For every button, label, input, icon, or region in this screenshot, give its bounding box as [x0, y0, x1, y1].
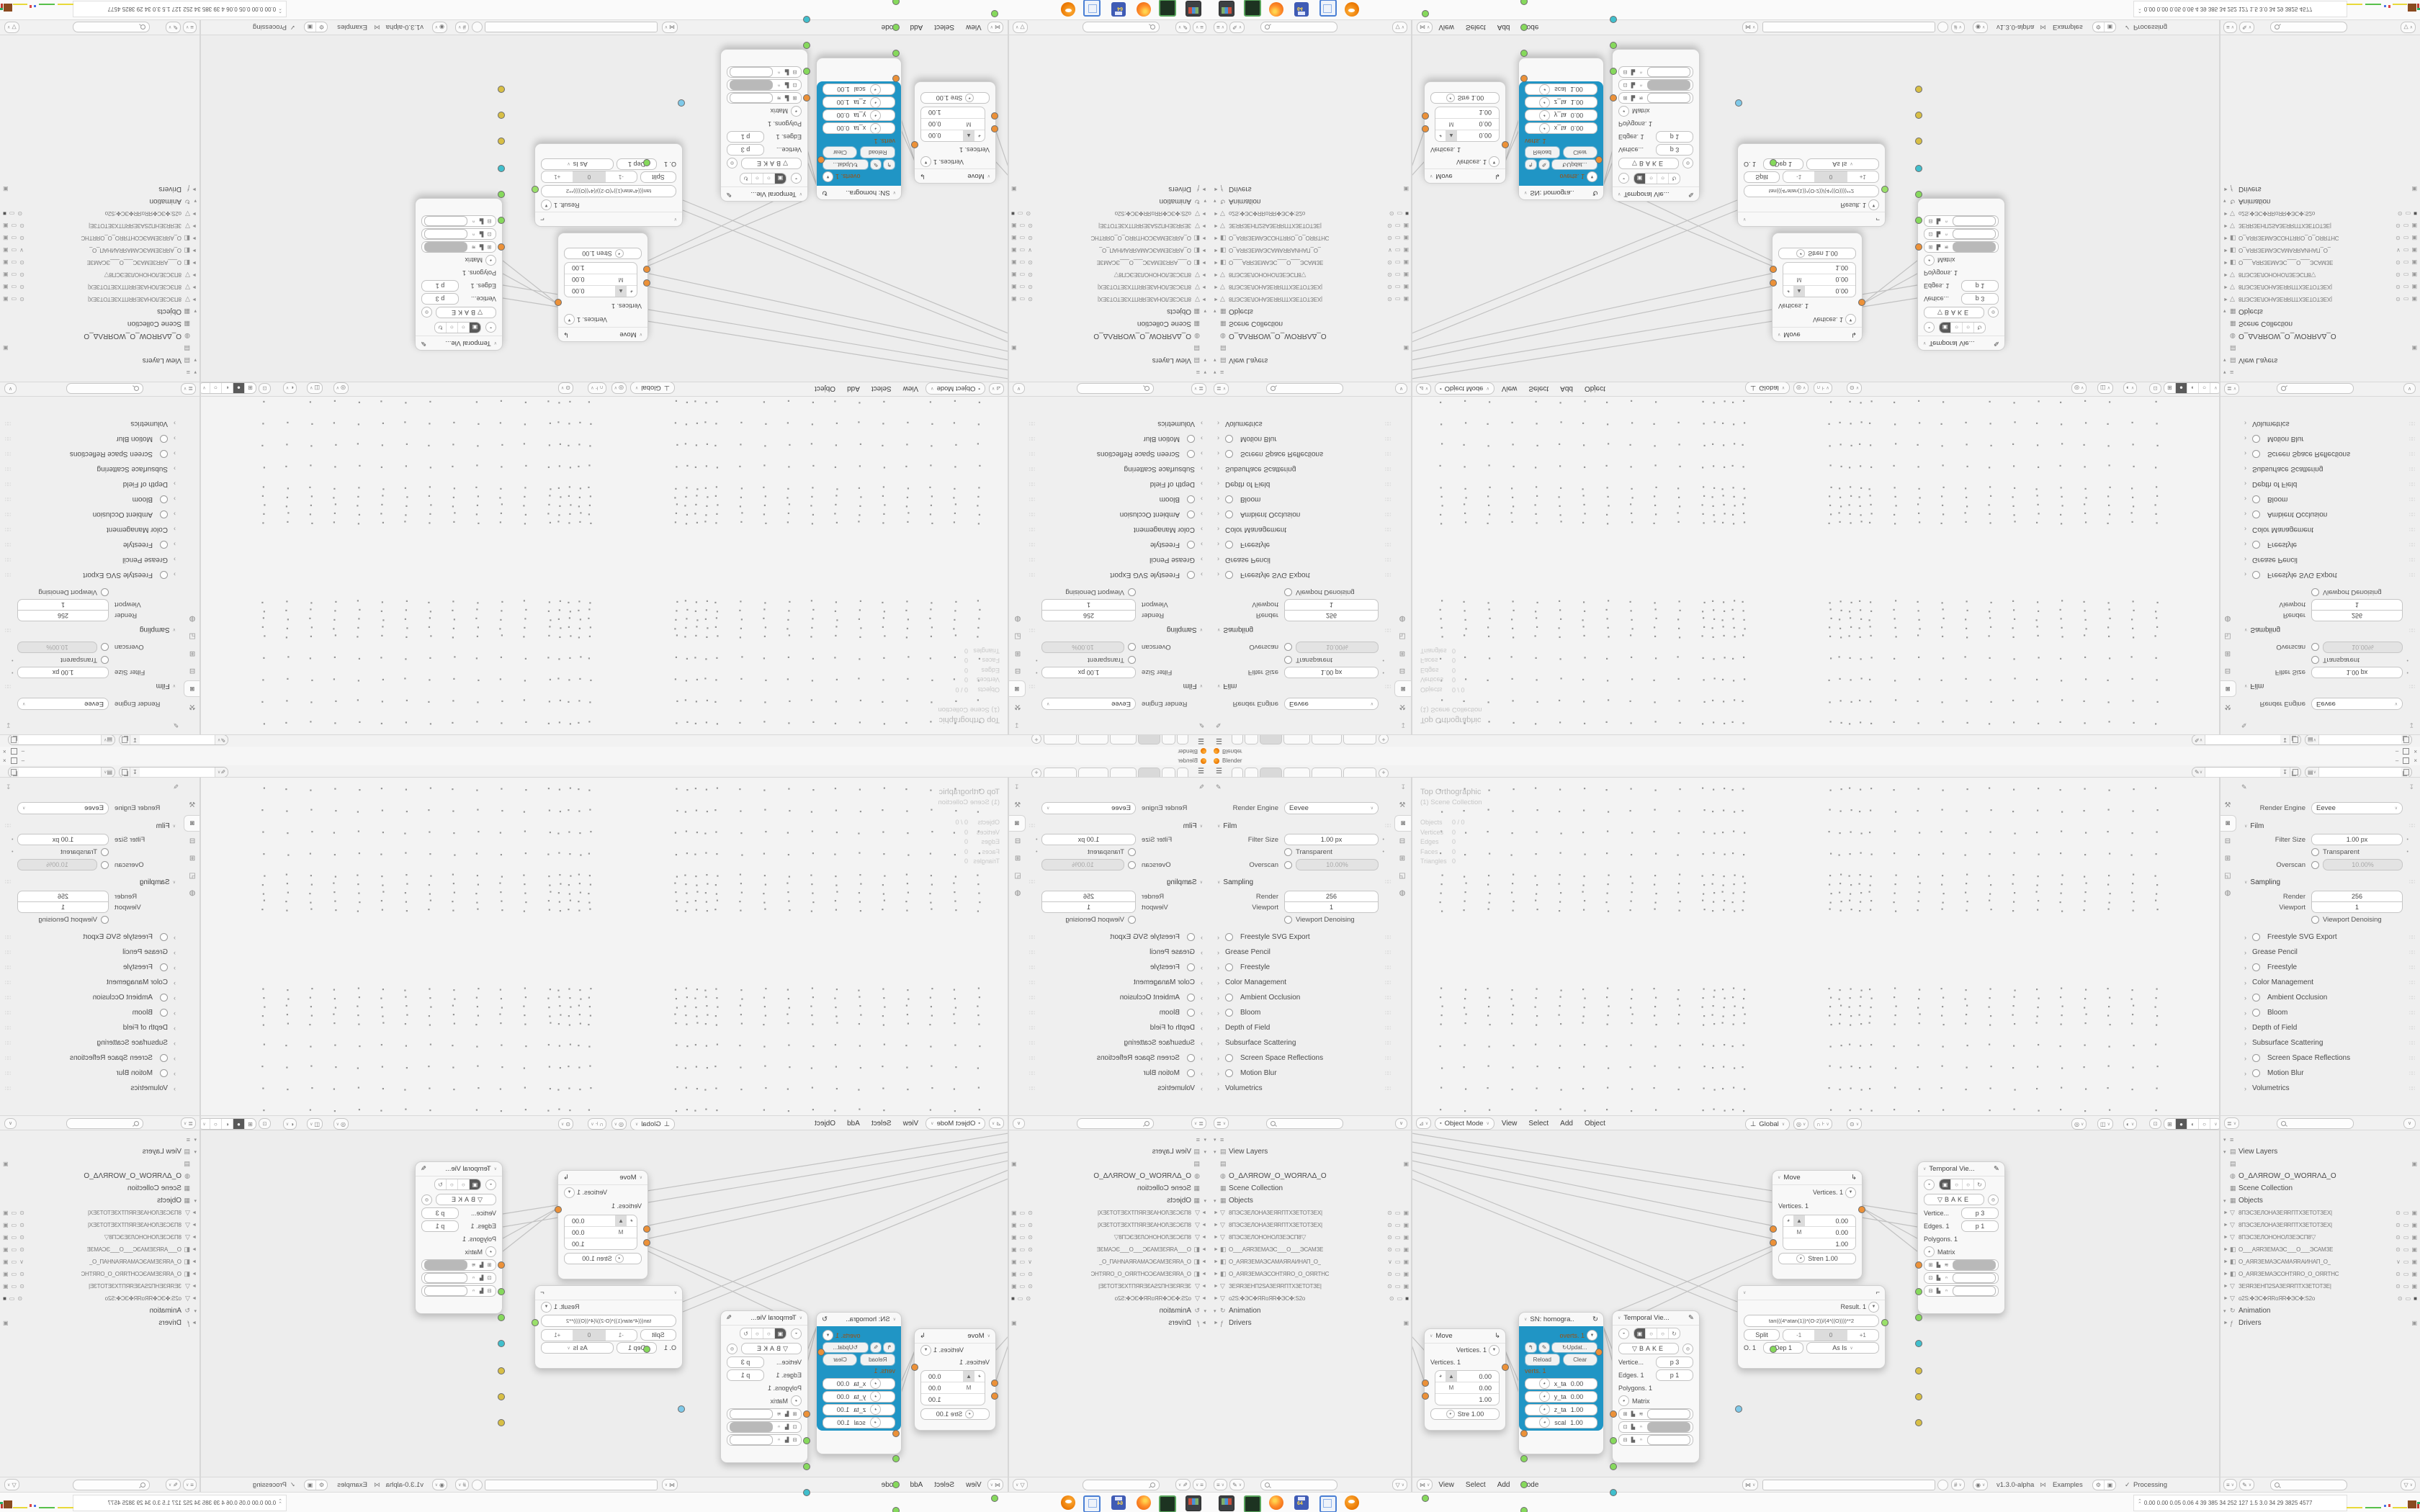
collapsed-section-volumetrics[interactable]: ›Volumetrics∷∷ [1026, 416, 1210, 431]
eye-icon[interactable]: ⊙ [1387, 296, 1392, 302]
outliner-row-object[interactable]: ►◧O_АЯRЗЕМАЭСАМАЯRАИНАП_O_∨▭▣ [0, 1256, 200, 1268]
collapsed-section-bloom[interactable]: ›Bloom∷∷ [1, 1005, 183, 1020]
eye-icon[interactable]: ⊙ [2396, 271, 2401, 278]
collapsed-section-freestyle[interactable]: ›Freestyle∷∷ [1026, 537, 1210, 552]
menu-icon[interactable]: ☰ [1216, 768, 1224, 775]
workspace-tab[interactable] [1177, 768, 1188, 778]
checkbox-row[interactable]: Viewport Denoising [2237, 916, 2419, 924]
filter-tool-button[interactable]: ✎∨ [1175, 22, 1191, 33]
output-socket[interactable] [1502, 141, 1509, 148]
workspace-tab[interactable] [1177, 734, 1188, 744]
filter-button[interactable]: ▽∨ [2401, 22, 2416, 33]
tab-view-layer-icon[interactable]: ⊞ [1010, 646, 1026, 661]
render-engine-row[interactable]: Render EngineEevee∨ [1026, 802, 1210, 814]
search-input[interactable] [2277, 1118, 2354, 1129]
input-socket[interactable] [1770, 266, 1777, 273]
scr-icon[interactable]: ▭ [1395, 1222, 1401, 1228]
section-header[interactable]: ∨Sampling∷∷ [1, 877, 183, 887]
menu-view[interactable]: View [1438, 24, 1454, 32]
formula-input[interactable]: tan(((4*atan(1))*(O-2))/(4*((O))))**2 [1744, 1315, 1879, 1327]
outliner-row-world[interactable]: ◍O_ΔΛЯROW_O_WOЯRΛΔ_O [0, 1170, 200, 1182]
tab-tool-icon[interactable]: ⚒ [1394, 699, 1410, 714]
tab-world-icon[interactable]: ◍ [2220, 886, 2236, 901]
output-socket[interactable] [912, 1364, 919, 1371]
outliner-row-animation[interactable]: ▾↻Animation [2220, 1305, 2420, 1317]
collapsed-section-screen-space-reflections[interactable]: ›Screen Space Reflections∷∷ [1026, 446, 1210, 462]
frame-app-icon[interactable] [1083, 1495, 1101, 1512]
matrix-widget[interactable]: ◕▲0.00 M0.00 1.00 [1783, 262, 1856, 297]
input-socket[interactable] [1422, 1495, 1429, 1502]
status-icon[interactable] [1937, 1480, 1948, 1490]
samples-render-row[interactable]: Render256 [2237, 891, 2419, 902]
copy-icon[interactable] [2401, 768, 2411, 777]
dropdown-icon[interactable]: ▼ [1845, 315, 1856, 325]
sn-field-y_ta[interactable]: ◕y_ta0.00 [821, 110, 897, 121]
image-viewer-app-icon[interactable] [1244, 0, 1261, 17]
eye-icon[interactable]: ⊙ [1387, 284, 1392, 290]
cam-icon[interactable]: ▣ [3, 235, 9, 241]
outliner-row-objects[interactable]: ▾▦Objects [1008, 1194, 1210, 1207]
sn-field-z_ta[interactable]: ◕z_ta1.00 [1523, 97, 1599, 108]
outliner-row-view-layers[interactable]: ▾▤View Layers [2220, 1146, 2420, 1158]
offset-stepper[interactable]: -10+1 [1783, 171, 1879, 184]
menu-select[interactable]: Select [871, 385, 892, 393]
collapsed-section-freestyle-svg-export[interactable]: ›Freestyle SVG Export∷∷ [1, 930, 183, 945]
tab-tool-icon[interactable]: ⚒ [2220, 798, 2236, 813]
box-icon[interactable]: ▣ [2411, 1320, 2417, 1326]
eye-icon[interactable]: ⊙ [1028, 1246, 1033, 1253]
scr-icon[interactable]: ▭ [12, 247, 17, 253]
overscan-row[interactable]: Overscan10.00% [1210, 859, 1394, 870]
image-icon[interactable]: ▤∨ [2305, 735, 2319, 744]
outliner-row-object[interactable]: ►▽8ПЭСЗЕЛОНОНОЛЗЕЭСП8▽⊙▭▣ [1210, 269, 1412, 281]
collapsed-section-grease-pencil[interactable]: ›Grease Pencil∷∷ [1, 945, 183, 960]
pin-icon[interactable]: ↧ [6, 783, 12, 791]
input-socket[interactable] [1915, 1367, 1922, 1374]
mode-dropdown[interactable]: ▪Object Mode∨ [1435, 1117, 1494, 1130]
tab-scene-icon[interactable]: ◱ [184, 868, 200, 883]
node-tree-input[interactable] [1762, 22, 1935, 33]
shading-mode-switch[interactable]: ⊞●◐○∨ [2164, 382, 2222, 394]
editor-type-button[interactable]: ⊿∨ [989, 1117, 1004, 1129]
eye-icon[interactable]: ⊙ [2396, 222, 2401, 229]
copy-icon[interactable] [120, 735, 130, 744]
outliner-row-scene-collection[interactable]: ▦Scene Collection [2220, 1182, 2420, 1194]
tab-world-icon[interactable]: ◍ [1010, 886, 1026, 901]
outliner-row-view-layers[interactable]: ▾▤View Layers [1008, 1146, 1210, 1158]
outliner-row-object[interactable]: ►◧O_АЯRЗЕМАЭСАМАЯRАИНАП_O_∨▭▣ [1210, 244, 1412, 256]
id-field-input[interactable] [140, 768, 215, 777]
collapsed-section-volumetrics[interactable]: ›Volumetrics∷∷ [1, 1081, 183, 1096]
node-temporal-viewer[interactable]: ∨Temporal Vie...✎◒▣○○↻▽ BAKE◎Vertice...p… [1917, 198, 2005, 351]
collapsed-section-freestyle[interactable]: ›Freestyle∷∷ [1, 960, 183, 975]
solo-button[interactable]: ⊡ [259, 383, 271, 394]
scr-icon[interactable]: ▭ [1395, 284, 1401, 290]
eye-icon[interactable]: ⊙ [19, 222, 24, 229]
tab-render-icon[interactable]: ◙ [1009, 815, 1026, 832]
outliner-row-scene-collection[interactable]: ▦Scene Collection [1008, 1182, 1210, 1194]
tab-render-icon[interactable]: ◙ [184, 680, 200, 697]
copy-icon[interactable] [2401, 735, 2411, 744]
sn-field-y_ta[interactable]: ◕y_ta0.00 [821, 1391, 897, 1402]
overscan-row[interactable]: Overscan10.00% [1, 859, 183, 870]
sn-field-x_ta[interactable]: ◕x_ta0.00 [821, 1378, 897, 1389]
menu-view[interactable]: View [903, 385, 919, 393]
input-socket[interactable] [1520, 75, 1528, 82]
scr-icon[interactable]: ▭ [12, 235, 17, 241]
copy-icon[interactable] [2290, 768, 2300, 777]
scr-icon[interactable]: ▭ [1395, 1234, 1401, 1241]
matrix-widget[interactable]: ◕▲0.00 M0.00 1.00 [564, 262, 637, 297]
copy-icon[interactable] [9, 735, 19, 744]
scr-icon[interactable]: ▭ [1395, 296, 1401, 302]
node-editor[interactable]: ∨Move↳ Vertices. 1▼ Vertices. 1 ◕▲0.00 M… [200, 1130, 1008, 1492]
menu-add[interactable]: Add [847, 385, 860, 393]
samples-render-row[interactable]: Render256 [1, 891, 183, 902]
clear-button[interactable]: Clear [1563, 147, 1598, 159]
output-socket[interactable] [1502, 1364, 1509, 1371]
dropdown-icon[interactable]: ▼ [1845, 1187, 1856, 1198]
tab-output-icon[interactable]: ⊟ [1010, 834, 1026, 849]
outliner-row-scene-filter[interactable]: ▾≡ [0, 366, 200, 379]
workspace-tab[interactable] [1283, 768, 1310, 778]
editor-type-button[interactable]: ≣∨ [181, 383, 196, 395]
screenshot-app-icon[interactable] [1219, 1495, 1234, 1511]
outliner-row-object[interactable]: ►▽8ПЭСЗЕЛОНОНОЛЗЕЭСП8▽⊙▭▣ [2220, 1231, 2420, 1243]
editor-type-button[interactable]: ⊿∨ [989, 383, 1004, 395]
input-socket[interactable] [1610, 1463, 1617, 1470]
collapsed-section-ambient-occlusion[interactable]: ›Ambient Occlusion∷∷ [1210, 990, 1394, 1005]
eye-icon[interactable]: ⊙ [1028, 259, 1033, 266]
cam-icon[interactable]: ▣ [1403, 1283, 1409, 1290]
shading-mode-switch[interactable]: ⊞●◐○∨ [2164, 1118, 2222, 1130]
cam-icon[interactable]: ▣ [3, 1259, 9, 1265]
pin-icon[interactable]: ↧ [2408, 721, 2414, 729]
reload-button[interactable]: Reload [1525, 1354, 1560, 1366]
node-temporal-viewer[interactable]: ∨Temporal Vie...✎◒▣○○↻▽ BAKE◎Vertice...p… [720, 1310, 808, 1463]
scr-icon[interactable]: ▭ [2403, 1246, 2409, 1253]
search-input[interactable] [1083, 1480, 1160, 1490]
settings-toggle[interactable]: ⚙▣ [304, 1480, 328, 1490]
tab-output-icon[interactable]: ⊟ [184, 663, 200, 678]
filter-tool-button[interactable]: ✎∨ [1175, 1479, 1191, 1490]
scr-icon[interactable]: ▭ [2403, 235, 2409, 241]
id-datablock-field[interactable]: ▤∨ [2305, 734, 2412, 745]
pin-icon[interactable]: ↧ [2280, 735, 2290, 744]
checkbox-row[interactable]: Viewport Denoising [2237, 588, 2419, 596]
eye-icon[interactable]: ⊙ [1387, 271, 1392, 278]
target-button[interactable]: ◉∨ [1973, 22, 1988, 33]
cam-icon[interactable]: ▣ [1403, 1210, 1409, 1216]
blender-app-icon[interactable] [1345, 2, 1359, 17]
menu-view[interactable]: View [903, 1120, 919, 1128]
samples-viewport-row[interactable]: Viewport1 [1026, 599, 1210, 610]
tool-icon[interactable]: ✎∨ [2192, 768, 2205, 777]
eye-icon[interactable]: ⊙ [19, 271, 24, 278]
collapsed-section-freestyle[interactable]: ›Freestyle∷∷ [1026, 960, 1210, 975]
tab-world-icon[interactable]: ◍ [184, 886, 200, 901]
collapsed-section-motion-blur[interactable]: ›Motion Blur∷∷ [2237, 1066, 2419, 1081]
outliner-row-world[interactable]: ◍O_ΔΛЯROW_O_WOЯRΛΔ_O [1008, 1170, 1210, 1182]
collapsed-section-grease-pencil[interactable]: ›Grease Pencil∷∷ [1026, 552, 1210, 567]
tool-icon[interactable]: ✎∨ [2192, 735, 2205, 744]
settings-toggle[interactable]: ⚙▣ [2092, 22, 2116, 33]
formula-input[interactable]: tan(((4*atan(1))*(O-2))/(4*((O))))**2 [541, 1315, 676, 1327]
cam-icon[interactable]: ▣ [1403, 1161, 1409, 1167]
scr-icon[interactable]: ▭ [1395, 235, 1401, 241]
cam-icon[interactable]: ▣ [1011, 345, 1017, 351]
node-sn-homography[interactable]: ∨SN: homogra..↻ overts. 1▼ ↰✎↻ Updat... … [1518, 1312, 1604, 1454]
xray-button[interactable]: ◐∨ [283, 382, 297, 394]
outliner-row-scene-filter[interactable]: ▾≡ [2220, 1133, 2420, 1146]
samples-render-row[interactable]: Render256 [1210, 610, 1394, 621]
samples-viewport-row[interactable]: Viewport1 [1210, 599, 1394, 610]
cam-icon[interactable]: ▣ [1403, 1271, 1409, 1277]
collapsed-section-color-management[interactable]: ›Color Management∷∷ [1, 522, 183, 537]
outliner-row-object[interactable]: ►◧O_АЯRЗЕМАЭСОНТЯRО_O_ОЯRТНС⊙▭▣ [0, 1268, 200, 1280]
cam-icon[interactable]: ▣ [3, 1222, 9, 1228]
section-header[interactable]: ∨Sampling∷∷ [1210, 625, 1394, 635]
chev-icon[interactable]: ∨ [1388, 1259, 1392, 1265]
input-socket[interactable] [1915, 138, 1922, 145]
eye-icon[interactable]: ⊙ [19, 284, 24, 290]
node-sn-homography[interactable]: ∨SN: homogra..↻ overts. 1▼ ↰✎↻ Updat... … [1518, 58, 1604, 200]
add-workspace-button[interactable]: + [1031, 734, 1041, 744]
node-tree-input[interactable] [1762, 1480, 1935, 1490]
cam-icon[interactable]: ▣ [1011, 1234, 1017, 1241]
eye-icon[interactable]: ⊙ [1026, 210, 1031, 217]
scr-icon[interactable]: ▭ [1020, 235, 1026, 241]
menu-select[interactable]: Select [1466, 24, 1486, 32]
tree-select-button[interactable]: ⋈∨ [662, 22, 678, 33]
dropdown-icon[interactable]: ▼ [1489, 157, 1500, 168]
restore-button[interactable] [11, 748, 17, 755]
tab-view-layer-icon[interactable]: ⊞ [184, 646, 200, 661]
image-icon[interactable]: ▤∨ [101, 768, 115, 777]
tab-scene-icon[interactable]: ◱ [1010, 629, 1026, 644]
menu-select[interactable]: Select [1528, 385, 1549, 393]
id-field-input[interactable] [2319, 735, 2401, 744]
eye-icon[interactable]: ⊙ [2398, 210, 2403, 217]
bake-button[interactable]: ▽ BAKE [436, 1194, 496, 1205]
cam-icon[interactable]: ▣ [2411, 1210, 2417, 1216]
scr-icon[interactable]: ▭ [2406, 1295, 2411, 1302]
workspace-tab[interactable] [1044, 768, 1077, 778]
node-temporal-viewer[interactable]: ∨Temporal Vie...✎◒▣○○↻▽ BAKE◎Vertice...p… [415, 1161, 503, 1314]
editor-type-button[interactable]: ≣∨ [181, 1117, 196, 1129]
outliner-row-drivers[interactable]: ►ƒDrivers▣ [1008, 1317, 1210, 1329]
chev-icon[interactable]: ∨ [2396, 1259, 2401, 1265]
collapsed-section-depth-of-field[interactable]: ›Depth of Field∷∷ [1210, 477, 1394, 492]
tab-world-icon[interactable]: ◍ [184, 611, 200, 626]
outliner-row-world[interactable]: ◍O_ΔΛЯROW_O_WOЯRΛΔ_O [2220, 330, 2420, 342]
scr-icon[interactable]: ▭ [12, 1210, 17, 1216]
cam-icon[interactable]: ▣ [3, 1283, 9, 1290]
tab-view-layer-icon[interactable]: ⊞ [1394, 851, 1410, 866]
minimize-button[interactable]: – [22, 757, 24, 764]
orientation-dropdown[interactable]: ⊥Global∨ [630, 382, 675, 394]
menu-icon[interactable]: ☰ [1216, 737, 1224, 744]
node-formula[interactable]: ∨⌐ Result. 1▼ tan(((4*atan(1))*(O-2))/(4… [1737, 143, 1886, 227]
eye-icon[interactable]: ⊙ [1026, 1295, 1031, 1302]
outliner-row-object[interactable]: ►▽ЗЕЯRЗЕНП2SАЗЕЯRПТХЗЕТОТЗЕ|⊙▭▣ [1210, 1280, 1412, 1292]
id-datablock-field[interactable]: ✎∨ ↧ [119, 734, 228, 745]
cam-icon[interactable]: ▣ [2411, 1161, 2417, 1167]
matrix-widget[interactable]: ◕▲0.00 M0.00 1.00 [920, 1370, 985, 1405]
close-button[interactable]: × [2414, 748, 2417, 755]
cam-icon[interactable]: ▣ [1403, 1246, 1409, 1253]
editor-type-button[interactable]: ⋈∨ [1417, 1479, 1433, 1490]
outliner-row-scene-filter[interactable]: ▾≡ [1210, 1133, 1412, 1146]
outliner-row-object[interactable]: ►▽8ПЭСЗЕЛОНАЗЕЯRПТХЗЕТОТЗЕХ|⊙▭▣ [1210, 293, 1412, 305]
cam-icon[interactable]: ▣ [3, 345, 9, 351]
magnet-snap-button[interactable]: ∩⊦∨ [1814, 382, 1832, 394]
tab-output-icon[interactable]: ⊟ [1010, 663, 1026, 678]
section-header[interactable]: ∨Film∷∷ [1, 821, 183, 831]
outliner-row-object[interactable]: ►◧O_АЯRЗЕМАЭСОНТЯRО_O_ОЯRТНС⊙▭▣ [0, 232, 200, 244]
blender-app-icon[interactable] [1061, 2, 1075, 17]
xray-button[interactable]: ◐∨ [2123, 1118, 2137, 1130]
eye-icon[interactable]: ⊙ [1028, 222, 1033, 229]
sn-field-z_ta[interactable]: ◕z_ta1.00 [821, 97, 897, 108]
target-button[interactable]: ◉∨ [1973, 1479, 1988, 1490]
dropdown-icon[interactable]: ▼ [564, 315, 575, 325]
collapsed-section-freestyle[interactable]: ›Freestyle∷∷ [1, 537, 183, 552]
collapsed-section-color-management[interactable]: ›Color Management∷∷ [2237, 975, 2419, 990]
dropdown-icon[interactable]: ▼ [1587, 171, 1597, 182]
offset-stepper[interactable]: -10+1 [1783, 1329, 1879, 1341]
formula-input[interactable]: tan(((4*atan(1))*(O-2))/(4*((O))))**2 [541, 185, 676, 197]
orientation-dropdown[interactable]: ⊥Global∨ [1745, 382, 1790, 394]
eye-icon[interactable]: ⊙ [19, 1222, 24, 1228]
cam-icon[interactable]: ▣ [1011, 1283, 1017, 1290]
options-button[interactable]: ∨ [1395, 1118, 1407, 1129]
outliner-row-scene-collection[interactable]: ▦Scene Collection [1210, 318, 1412, 330]
scr-icon[interactable]: ▭ [1395, 259, 1401, 266]
input-socket[interactable] [893, 1507, 900, 1512]
scr-icon[interactable]: ▭ [1395, 1259, 1401, 1265]
render-engine-row[interactable]: Render EngineEevee∨ [2237, 802, 2419, 814]
tab-scene-icon[interactable]: ◱ [1010, 868, 1026, 883]
id-field-input[interactable] [19, 735, 101, 744]
collapsed-section-depth-of-field[interactable]: ›Depth of Field∷∷ [1026, 477, 1210, 492]
collapsed-section-freestyle-svg-export[interactable]: ›Freestyle SVG Export∷∷ [2237, 930, 2419, 945]
pin-icon[interactable]: ↧ [2280, 768, 2290, 777]
tab-tool-icon[interactable]: ⚒ [184, 798, 200, 813]
collapsed-section-ambient-occlusion[interactable]: ›Ambient Occlusion∷∷ [1026, 990, 1210, 1005]
node-move[interactable]: ∨Move↳ Vertices. 1▼ Vertices. 1 ◕▲0.00 M… [557, 1170, 648, 1279]
bake-button[interactable]: ▽ BAKE [436, 307, 496, 318]
eye-icon[interactable]: ⊙ [1028, 296, 1033, 302]
samples-viewport-row[interactable]: Viewport1 [2237, 902, 2419, 913]
outliner-row-object[interactable]: ►▽о2Ѕ:✤ЭС✤ЯRоЯR✤ЭС✤:Ѕ2о⊙▭■ [0, 207, 200, 220]
status-icon[interactable] [472, 22, 483, 33]
bake-button[interactable]: ▽ BAKE [1618, 1343, 1679, 1354]
outliner-row-animation[interactable]: ▾↻Animation [2220, 195, 2420, 207]
save-app-icon[interactable] [1294, 2, 1309, 17]
orientation-dropdown[interactable]: ⊥Global∨ [1745, 1118, 1790, 1130]
outliner-row-objects[interactable]: ▾▦Objects [1008, 305, 1210, 318]
cam-icon[interactable]: ▣ [1011, 247, 1017, 253]
checkbox-row[interactable]: Viewport Denoising [1, 588, 183, 596]
output-socket[interactable] [532, 1319, 539, 1326]
box-icon[interactable]: ▣ [1403, 1320, 1409, 1326]
tab-render-icon[interactable]: ◙ [2220, 680, 2236, 697]
viewport-3d[interactable]: Top Orthographic (1) Scene Collection Ob… [1412, 382, 2220, 734]
node-move[interactable]: ∨Move↳ Vertices. 1▼ Vertices. 1 ◕▲0.00 M… [1772, 1170, 1863, 1279]
copy-icon[interactable] [2290, 735, 2300, 744]
cam-icon[interactable]: ▣ [2411, 235, 2417, 241]
node-sn-homography[interactable]: ∨SN: homogra..↻ overts. 1▼ ↰✎↻ Updat... … [816, 58, 902, 200]
tab-render-icon[interactable]: ◙ [184, 815, 200, 832]
settings-toggle[interactable]: ⚙▣ [2092, 1480, 2116, 1490]
pin-icon[interactable]: ↧ [2408, 783, 2414, 791]
eye-icon[interactable]: ⊙ [19, 1234, 24, 1241]
collapsed-section-volumetrics[interactable]: ›Volumetrics∷∷ [1026, 1081, 1210, 1096]
cam-icon[interactable]: ▣ [2411, 271, 2417, 278]
outliner-row-object[interactable]: ►▽8ПЭСЗЕЛОНАЗЕЯRПТХЗЕТОТЗЕХ|⊙▭▣ [2220, 1207, 2420, 1219]
cam-icon[interactable]: ▣ [1011, 284, 1017, 290]
eye-icon[interactable]: ⊙ [1387, 1210, 1392, 1216]
outliner-row-object[interactable]: ►◧O_АЯRЗЕМАЭСОНТЯRО_O_ОЯRТНС⊙▭▣ [2220, 232, 2420, 244]
collapsed-section-volumetrics[interactable]: ›Volumetrics∷∷ [1, 416, 183, 431]
collapsed-section-bloom[interactable]: ›Bloom∷∷ [1210, 492, 1394, 507]
save-app-icon[interactable] [1111, 1495, 1126, 1510]
outliner-row-object[interactable]: ►▽8ПЭСЗЕЛОНАЗЕЯRПТХЗЕТОТЗЕХ|⊙▭▣ [0, 1207, 200, 1219]
collapsed-section-color-management[interactable]: ›Color Management∷∷ [1026, 975, 1210, 990]
node-move[interactable]: ∨Move↳ Vertices. 1▼ Vertices. 1 ◕▲0.00 M… [1424, 1328, 1506, 1431]
outliner-row-objects[interactable]: ▾▦Objects [1210, 305, 1412, 318]
tree-select-button[interactable]: ⋈∨ [1742, 1479, 1758, 1490]
outliner-row-object[interactable]: ►▽ЗЕЯRЗЕНП2SАЗЕЯRПТХЗЕТОТЗЕ|⊙▭▣ [1008, 1280, 1210, 1292]
property-field-row[interactable]: Filter Size1.00 px• [2237, 834, 2419, 845]
collapsed-section-ambient-occlusion[interactable]: ›Ambient Occlusion∷∷ [1, 990, 183, 1005]
box-icon[interactable]: ▣ [3, 1320, 9, 1326]
overscan-row[interactable]: Overscan10.00% [1026, 642, 1210, 653]
collapsed-section-volumetrics[interactable]: ›Volumetrics∷∷ [1210, 1081, 1394, 1096]
display-mode-button[interactable]: ≡∨ [2223, 22, 2237, 33]
outliner-row-object[interactable]: ►▽о2Ѕ:✤ЭС✤ЯRоЯR✤ЭС✤:Ѕ2о⊙▭■ [1008, 207, 1210, 220]
cam-icon[interactable]: ▣ [1011, 1161, 1017, 1167]
eye-icon[interactable]: ⊙ [1389, 1295, 1394, 1302]
scr-icon[interactable]: ▭ [1020, 1271, 1026, 1277]
minimize-button[interactable]: – [2396, 748, 2398, 755]
blender-app-icon[interactable] [1061, 1495, 1075, 1510]
input-socket[interactable] [1735, 99, 1742, 107]
scr-icon[interactable]: ▭ [2403, 1259, 2409, 1265]
search-input[interactable] [1266, 1118, 1343, 1129]
overscan-row[interactable]: Overscan10.00% [2237, 859, 2419, 870]
cam-icon[interactable]: ▣ [1011, 1271, 1017, 1277]
scr-icon[interactable]: ▭ [12, 1271, 17, 1277]
dropdown-icon[interactable]: ▼ [1868, 1302, 1879, 1313]
scr-icon[interactable]: ▭ [1020, 1234, 1026, 1241]
cam-icon[interactable]: ▣ [1011, 296, 1017, 302]
search-input[interactable] [1266, 384, 1343, 395]
cam-icon[interactable]: ▣ [1011, 235, 1017, 241]
dropdown-icon[interactable]: ▼ [1587, 1330, 1597, 1341]
scr-icon[interactable]: ▭ [12, 259, 17, 266]
collapsed-section-volumetrics[interactable]: ›Volumetrics∷∷ [1210, 416, 1394, 431]
property-field-row[interactable]: Filter Size1.00 px• [1, 667, 183, 678]
split-button[interactable]: Split [1744, 171, 1780, 183]
collapsed-section-depth-of-field[interactable]: ›Depth of Field∷∷ [2237, 1020, 2419, 1035]
input-socket[interactable] [1422, 10, 1429, 17]
render-engine-row[interactable]: Render EngineEevee∨ [2237, 698, 2419, 710]
display-mode-button[interactable]: ≡∨ [183, 1479, 197, 1490]
scr-icon[interactable]: ▭ [1020, 1222, 1026, 1228]
scr-icon[interactable]: ▭ [1020, 284, 1026, 290]
